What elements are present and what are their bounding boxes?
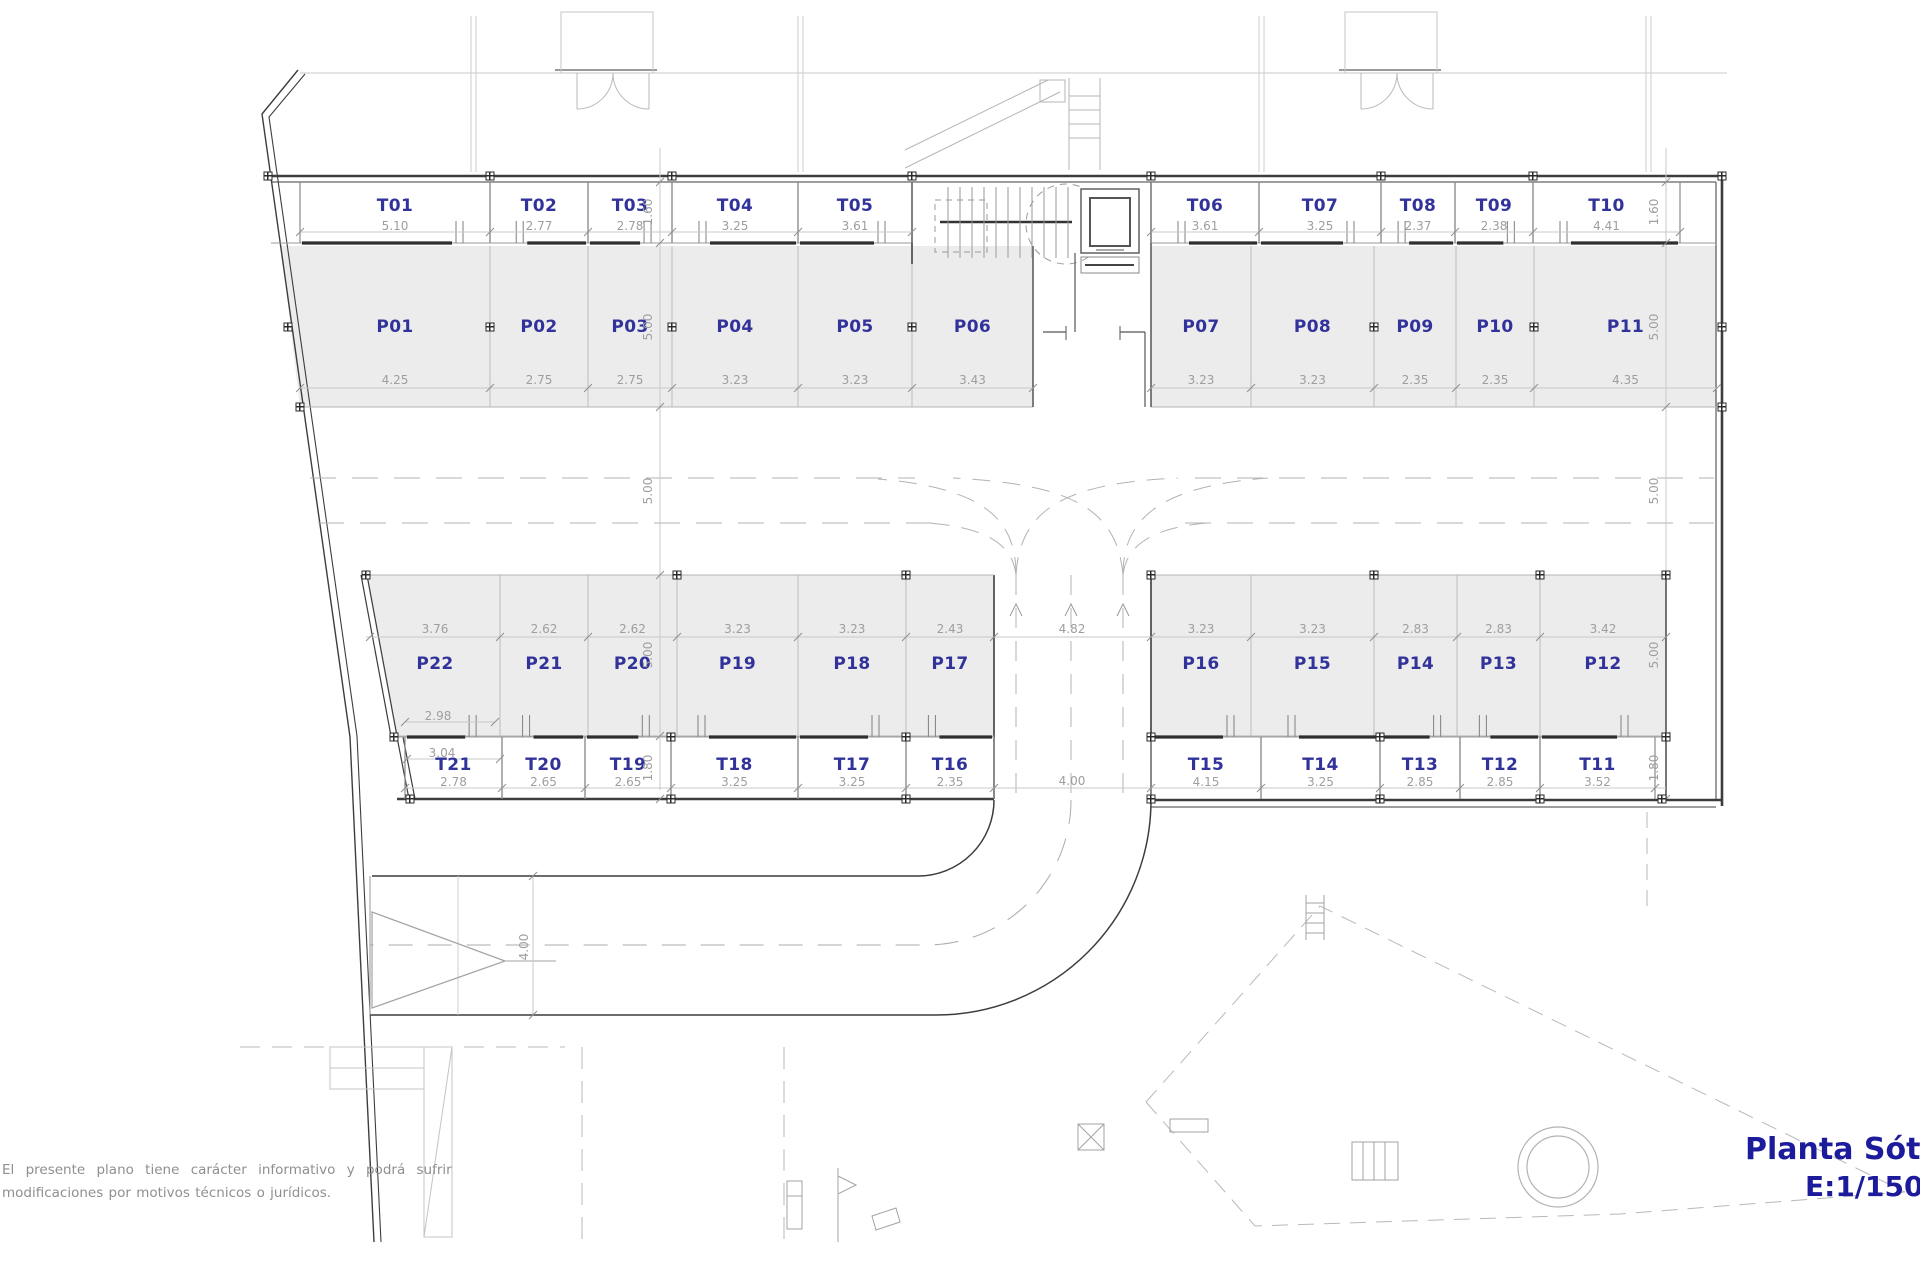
- unit-width-dim-t21: 2.78: [440, 775, 467, 789]
- upper-wall-traces: [471, 16, 1651, 172]
- column-marker: [667, 733, 676, 742]
- unit-label-p16: P16: [1182, 654, 1219, 674]
- column-marker: [284, 323, 293, 332]
- unit-width-dim-p04: 3.23: [722, 373, 749, 387]
- unit-width-dim-t12: 2.85: [1487, 775, 1514, 789]
- extra-dim-1: 3.04: [429, 746, 456, 760]
- column-marker: [1536, 795, 1545, 804]
- unit-width-dim-p19: 3.23: [724, 622, 751, 636]
- disclaimer-line-1: El presente plano tiene carácter informa…: [2, 1162, 452, 1178]
- unit-width-dim-p14: 2.83: [1402, 622, 1429, 636]
- unit-width-dim-p16: 3.23: [1188, 622, 1215, 636]
- unit-width-dim-p02: 2.75: [526, 373, 553, 387]
- unit-width-dim-p18: 3.23: [839, 622, 866, 636]
- column-marker: [1370, 571, 1379, 580]
- unit-label-p17: P17: [931, 654, 968, 674]
- unit-label-p10: P10: [1476, 317, 1513, 337]
- unit-label-p21: P21: [525, 654, 562, 674]
- unit-label-t17: T17: [834, 755, 870, 775]
- unit-width-dim-t20: 2.65: [530, 775, 557, 789]
- column-marker: [1370, 323, 1379, 332]
- column-marker: [1147, 795, 1156, 804]
- column-marker: [1536, 571, 1545, 580]
- column-marker: [668, 172, 677, 181]
- unit-width-dim-p10: 2.35: [1482, 373, 1509, 387]
- unit-label-t11: T11: [1579, 755, 1615, 775]
- disclaimer-line-2: modificaciones por motivos técnicos o ju…: [2, 1185, 331, 1201]
- depth-dim-left-1: 5.00: [641, 314, 655, 341]
- unit-width-dim-p15: 3.23: [1299, 622, 1326, 636]
- unit-width-dim-t06: 3.61: [1192, 219, 1219, 233]
- column-marker: [1530, 323, 1539, 332]
- pool-ladder: [1306, 895, 1324, 940]
- unit-label-t16: T16: [932, 755, 968, 775]
- column-marker: [902, 571, 911, 580]
- column-marker: [1718, 323, 1727, 332]
- unit-width-dim-t16: 2.35: [937, 775, 964, 789]
- extra-dim-4: 4.00: [517, 934, 531, 961]
- unit-label-p01: P01: [376, 317, 413, 337]
- depth-dim-left-2: 5.00: [641, 478, 655, 505]
- unit-width-dim-p11: 4.35: [1612, 373, 1639, 387]
- unit-label-t12: T12: [1482, 755, 1518, 775]
- unit-width-dim-t03: 2.78: [617, 219, 644, 233]
- bench: [1170, 1119, 1208, 1132]
- unit-width-dim-p17: 2.43: [937, 622, 964, 636]
- unit-label-t04: T04: [717, 196, 753, 216]
- unit-label-t20: T20: [525, 755, 561, 775]
- depth-dim-right-1: 5.00: [1647, 314, 1661, 341]
- column-marker: [1529, 172, 1538, 181]
- unit-label-t07: T07: [1302, 196, 1338, 216]
- depth-dim-right-3: 5.00: [1647, 642, 1661, 669]
- depth-dim-left-0: 1.60: [641, 199, 655, 226]
- column-marker: [1376, 795, 1385, 804]
- column-marker: [902, 795, 911, 804]
- column-marker: [264, 172, 273, 181]
- unit-width-dim-p01: 4.25: [382, 373, 409, 387]
- depth-dim-left-4: 1.80: [641, 755, 655, 782]
- unit-label-t06: T06: [1187, 196, 1223, 216]
- unit-width-dim-t17: 3.25: [839, 775, 866, 789]
- column-marker: [1147, 571, 1156, 580]
- unit-width-dim-t05: 3.61: [842, 219, 869, 233]
- unit-label-t09: T09: [1476, 196, 1512, 216]
- site-boundary: [262, 70, 381, 1242]
- column-marker: [486, 172, 495, 181]
- column-marker: [1377, 172, 1386, 181]
- utility-box: [1078, 1124, 1104, 1150]
- column-marker: [1718, 172, 1727, 181]
- unit-width-dim-p22: 3.76: [422, 622, 449, 636]
- unit-label-p11: P11: [1607, 317, 1644, 337]
- column-marker: [908, 323, 917, 332]
- column-marker: [1147, 172, 1156, 181]
- unit-label-t10: T10: [1588, 196, 1624, 216]
- unit-label-t05: T05: [837, 196, 873, 216]
- unit-label-p05: P05: [836, 317, 873, 337]
- unit-label-p13: P13: [1480, 654, 1517, 674]
- unit-width-dim-t09: 2.38: [1481, 219, 1508, 233]
- column-marker: [1376, 733, 1385, 742]
- column-marker: [486, 323, 495, 332]
- unit-label-t14: T14: [1302, 755, 1338, 775]
- unit-label-p09: P09: [1396, 317, 1433, 337]
- unit-width-dim-p09: 2.35: [1402, 373, 1429, 387]
- unit-width-dim-t02: 2.77: [526, 219, 553, 233]
- unit-label-t01: T01: [377, 196, 413, 216]
- unit-width-dim-t10: 4.41: [1593, 219, 1620, 233]
- unit-label-p19: P19: [719, 654, 756, 674]
- depth-dim-right-4: 1.80: [1647, 755, 1661, 782]
- unit-label-p14: P14: [1397, 654, 1434, 674]
- unit-label-p12: P12: [1584, 654, 1621, 674]
- column-marker: [362, 571, 371, 580]
- column-marker: [1658, 795, 1667, 804]
- unit-width-dim-p03: 2.75: [617, 373, 644, 387]
- unit-width-dim-p05: 3.23: [842, 373, 869, 387]
- plan-scale: E:1/150: [1805, 1170, 1920, 1203]
- ramp-slope-arrow: [372, 912, 505, 1008]
- column-marker: [1718, 403, 1727, 412]
- column-marker: [673, 571, 682, 580]
- unit-width-dim-t08: 2.37: [1405, 219, 1432, 233]
- column-marker: [406, 795, 415, 804]
- unit-label-p08: P08: [1294, 317, 1331, 337]
- depth-dim-right-2: 5.00: [1647, 478, 1661, 505]
- garden-items: [787, 1168, 900, 1242]
- extra-dim-0: 2.98: [425, 709, 452, 723]
- depth-dim-right-0: 1.60: [1647, 199, 1661, 226]
- round-planter: [1518, 1127, 1598, 1207]
- unit-label-p22: P22: [416, 654, 453, 674]
- unit-label-p02: P02: [520, 317, 557, 337]
- unit-label-t13: T13: [1402, 755, 1438, 775]
- extra-dim-3: 4.00: [1059, 774, 1086, 788]
- unit-width-dim-t04: 3.25: [722, 219, 749, 233]
- column-marker: [1662, 571, 1671, 580]
- unit-width-dim-p06: 3.43: [959, 373, 986, 387]
- unit-width-dim-p12: 3.42: [1590, 622, 1617, 636]
- plan-title: Planta Sótano: [1745, 1132, 1920, 1167]
- unit-width-dim-t07: 3.25: [1307, 219, 1334, 233]
- unit-label-t18: T18: [716, 755, 752, 775]
- floor-plan-linework: [0, 0, 1920, 1280]
- unit-label-t02: T02: [521, 196, 557, 216]
- unit-width-dim-t14: 3.25: [1307, 775, 1334, 789]
- basement-floor-plan: Planta Sótano E:1/150 El presente plano …: [0, 0, 1920, 1280]
- column-marker: [1147, 733, 1156, 742]
- extra-dim-2: 4.82: [1059, 622, 1086, 636]
- unit-width-dim-t19: 2.65: [615, 775, 642, 789]
- unit-label-p18: P18: [833, 654, 870, 674]
- column-marker: [902, 733, 911, 742]
- entry-ramp-above: [905, 78, 1100, 170]
- unit-width-dim-p13: 2.83: [1485, 622, 1512, 636]
- column-marker: [667, 795, 676, 804]
- column-marker: [390, 733, 399, 742]
- column-marker: [1662, 733, 1671, 742]
- unit-width-dim-t01: 5.10: [382, 219, 409, 233]
- access-road: [370, 800, 1151, 1015]
- column-marker: [296, 403, 305, 412]
- column-marker: [908, 172, 917, 181]
- unit-label-p15: P15: [1294, 654, 1331, 674]
- grate: [1352, 1142, 1398, 1180]
- exterior-upper-details: [300, 12, 1727, 172]
- unit-width-dim-p21: 2.62: [531, 622, 558, 636]
- unit-label-t08: T08: [1400, 196, 1436, 216]
- depth-dim-left-3: 5.00: [641, 642, 655, 669]
- unit-label-p04: P04: [716, 317, 753, 337]
- column-marker: [668, 323, 677, 332]
- unit-width-dim-p07: 3.23: [1188, 373, 1215, 387]
- unit-width-dim-p20: 2.62: [619, 622, 646, 636]
- unit-label-p07: P07: [1182, 317, 1219, 337]
- unit-width-dim-t11: 3.52: [1584, 775, 1611, 789]
- unit-width-dim-t15: 4.15: [1193, 775, 1220, 789]
- unit-label-t15: T15: [1188, 755, 1224, 775]
- unit-width-dim-t13: 2.85: [1407, 775, 1434, 789]
- unit-label-p06: P06: [954, 317, 991, 337]
- unit-width-dim-p08: 3.23: [1299, 373, 1326, 387]
- stair-landing: [935, 200, 987, 252]
- unit-width-dim-t18: 3.25: [721, 775, 748, 789]
